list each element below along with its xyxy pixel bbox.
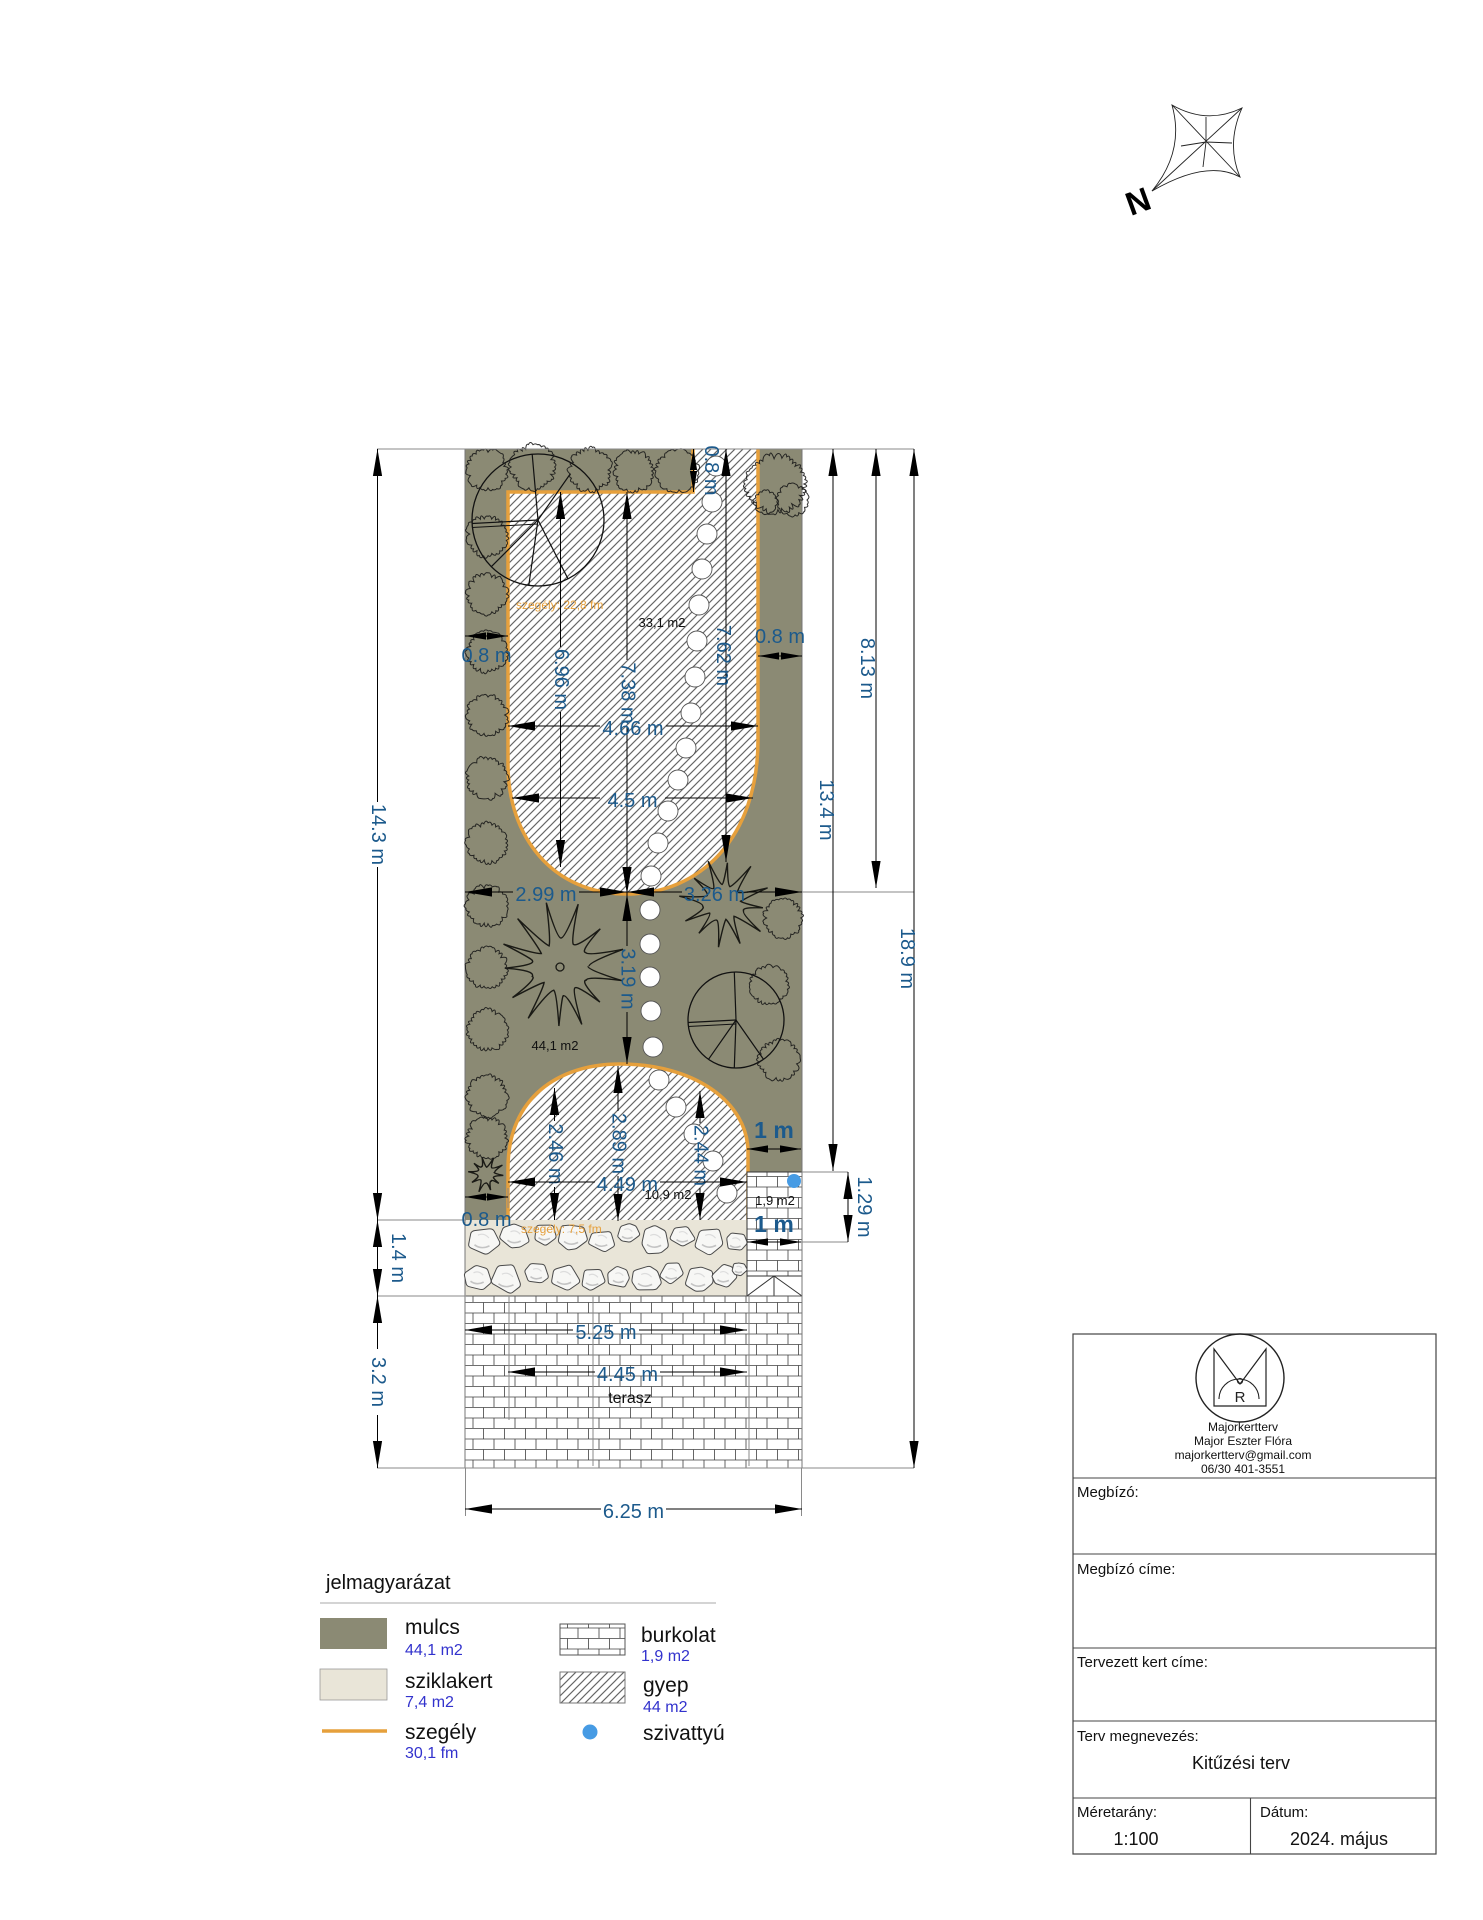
svg-text:1 m: 1 m [754, 1211, 794, 1237]
svg-text:2.99 m: 2.99 m [515, 884, 576, 906]
svg-text:3.19 m: 3.19 m [617, 948, 639, 1009]
svg-text:44,1 m2: 44,1 m2 [532, 1038, 579, 1053]
svg-text:Majorkertterv: Majorkertterv [1208, 1420, 1278, 1434]
svg-text:30,1 fm: 30,1 fm [405, 1745, 458, 1762]
svg-text:Terv megnevezés:: Terv megnevezés: [1077, 1728, 1199, 1745]
svg-text:2.46 m: 2.46 m [544, 1123, 566, 1184]
svg-text:18.9 m: 18.9 m [896, 928, 918, 989]
svg-text:13.4 m: 13.4 m [815, 779, 837, 840]
svg-text:4.49 m: 4.49 m [597, 1174, 658, 1196]
svg-text:sziklakert: sziklakert [405, 1670, 493, 1693]
svg-text:szegély: szegély [405, 1721, 477, 1744]
svg-text:Megbízó címe:: Megbízó címe: [1077, 1561, 1175, 1578]
svg-text:33,1 m2: 33,1 m2 [639, 615, 686, 630]
svg-text:Tervezett kert címe:: Tervezett kert címe: [1077, 1654, 1208, 1671]
svg-text:4.5 m: 4.5 m [607, 790, 657, 812]
svg-text:1,9 m2: 1,9 m2 [755, 1193, 795, 1208]
svg-text:Kitűzési terv: Kitűzési terv [1192, 1753, 1290, 1773]
svg-text:7.38 m: 7.38 m [617, 662, 639, 723]
svg-text:7,4 m2: 7,4 m2 [405, 1694, 454, 1711]
svg-text:0.8 m: 0.8 m [700, 445, 722, 495]
svg-text:Major Eszter Flóra: Major Eszter Flóra [1194, 1434, 1292, 1448]
svg-text:1,9 m2: 1,9 m2 [641, 1648, 690, 1665]
svg-text:3.26 m: 3.26 m [684, 884, 745, 906]
svg-text:szegély: 7,5 fm: szegély: 7,5 fm [521, 1222, 602, 1236]
svg-text:szegély: 22,8 fm: szegély: 22,8 fm [516, 598, 603, 612]
svg-text:44 m2: 44 m2 [643, 1699, 688, 1716]
svg-text:14.3 m: 14.3 m [367, 804, 389, 865]
svg-text:3.2 m: 3.2 m [367, 1357, 389, 1407]
svg-text:2024. május: 2024. május [1290, 1829, 1388, 1849]
svg-text:burkolat: burkolat [641, 1624, 716, 1647]
svg-text:R: R [1235, 1389, 1246, 1406]
svg-text:1 m: 1 m [754, 1117, 794, 1143]
svg-text:0.8 m: 0.8 m [755, 626, 805, 648]
svg-text:Megbízó:: Megbízó: [1077, 1484, 1139, 1501]
svg-text:44,1 m2: 44,1 m2 [405, 1642, 463, 1659]
svg-text:2.44 m: 2.44 m [690, 1125, 712, 1186]
svg-text:2.89 m: 2.89 m [608, 1113, 630, 1174]
svg-text:0.8 m: 0.8 m [461, 1209, 511, 1231]
svg-text:4.66 m: 4.66 m [602, 718, 663, 740]
svg-text:mulcs: mulcs [405, 1616, 460, 1639]
svg-text:majorkertterv@gmail.com: majorkertterv@gmail.com [1175, 1448, 1312, 1462]
svg-text:5.25 m: 5.25 m [575, 1322, 636, 1344]
svg-text:4.45 m: 4.45 m [597, 1364, 658, 1386]
svg-text:6.25 m: 6.25 m [603, 1501, 664, 1523]
svg-text:1.4 m: 1.4 m [387, 1233, 409, 1283]
svg-text:jelmagyarázat: jelmagyarázat [325, 1572, 451, 1594]
svg-text:Méretarány:: Méretarány: [1077, 1804, 1157, 1821]
svg-text:6.96 m: 6.96 m [550, 649, 572, 710]
svg-text:Dátum:: Dátum: [1260, 1804, 1308, 1821]
svg-text:8.13 m: 8.13 m [856, 638, 878, 699]
svg-text:terasz: terasz [608, 1390, 652, 1407]
svg-text:0.8 m: 0.8 m [461, 645, 511, 667]
svg-text:1:100: 1:100 [1113, 1829, 1158, 1849]
svg-text:06/30 401-3551: 06/30 401-3551 [1201, 1462, 1285, 1476]
svg-text:szivattyú: szivattyú [643, 1722, 725, 1745]
svg-text:gyep: gyep [643, 1674, 689, 1697]
svg-text:7.62 m: 7.62 m [712, 625, 734, 686]
svg-text:1.29 m: 1.29 m [853, 1176, 875, 1237]
